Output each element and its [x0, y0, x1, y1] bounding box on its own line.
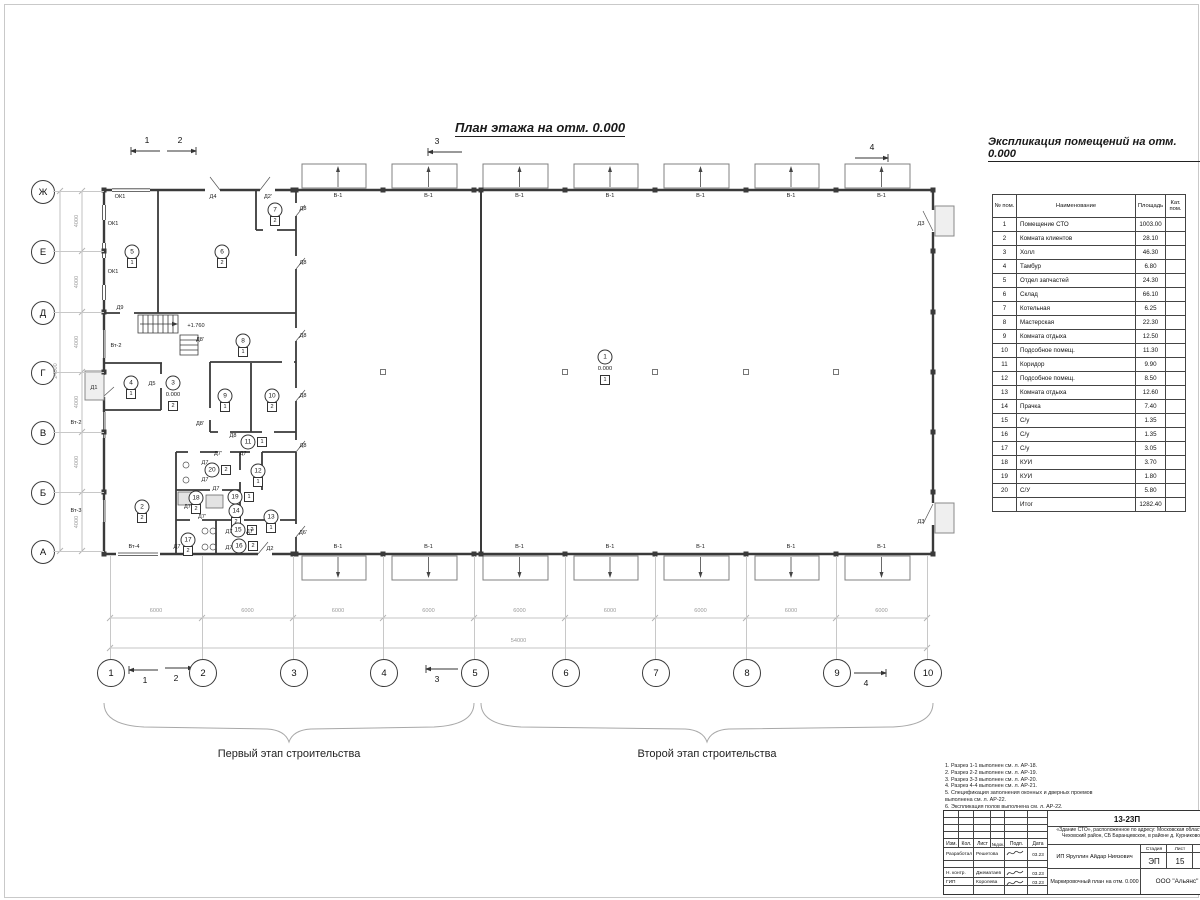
gate-label-v1: В-1	[877, 544, 886, 550]
axis-line	[565, 556, 566, 659]
section-mark-4: 4	[864, 678, 869, 688]
tb-signature	[1004, 885, 1029, 895]
section-mark-1: 1	[143, 675, 148, 685]
stage-2-label: Второй этап строительства	[638, 748, 777, 760]
plan-label-вт-2: Вт-2	[70, 420, 81, 426]
explication-row: 10Подсобное помещ.11.30	[993, 344, 1186, 358]
explication-row: 8Мастерская22.30	[993, 316, 1186, 330]
plan-label-д5: Д5	[149, 381, 156, 387]
floor-type-4: 1	[126, 389, 136, 399]
floor-type-11: 1	[257, 437, 267, 447]
dim-bay: 6000	[875, 608, 887, 614]
section-mark-2: 2	[174, 673, 179, 683]
gate-label-v1: В-1	[424, 544, 433, 550]
axis-line	[836, 556, 837, 659]
room-number-1: 1	[598, 350, 613, 365]
explication-row: 9Комната отдыха12.50	[993, 330, 1186, 344]
room-number-3: 3	[166, 376, 181, 391]
plan-label-д8: Д8	[230, 433, 237, 439]
plan-label-д2': Д2'	[264, 194, 272, 200]
section-mark-1: 1	[145, 135, 150, 145]
plan-label-д8: Д8	[300, 333, 307, 339]
plan-label-д3: Д3	[918, 519, 925, 525]
floor-type-18: 2	[191, 504, 201, 514]
gate-label-v1: В-1	[877, 193, 886, 199]
plan-label-д7': Д7'	[198, 514, 206, 520]
gate-label-v1: В-1	[515, 193, 524, 199]
room-number-19: 19	[228, 490, 243, 505]
col-header-name: Наименование	[1017, 195, 1136, 218]
explication-row: 11Коридор9.90	[993, 358, 1186, 372]
room-number-15: 15	[231, 523, 246, 538]
gate-label-v1: В-1	[696, 193, 705, 199]
floor-type-8: 1	[238, 347, 248, 357]
explication-row: 1Помещение СТО1003.00	[993, 218, 1186, 232]
axis-circle-Е: Е	[31, 240, 55, 264]
plan-label-д7: Д7	[240, 451, 247, 457]
explication-table: № пом. Наименование Площадь Кат. пом. 1П…	[992, 194, 1186, 512]
axis-circle-7: 7	[642, 659, 670, 687]
axis-circle-Ж: Ж	[31, 180, 55, 204]
dim-bay: 6000	[604, 608, 616, 614]
axis-circle-9: 9	[823, 659, 851, 687]
axis-circle-6: 6	[552, 659, 580, 687]
floor-type-12: 1	[253, 477, 263, 487]
plan-label-д8: Д8	[300, 443, 307, 449]
axis-line	[655, 556, 656, 659]
plan-label-д7: Д7	[202, 477, 209, 483]
plan-label-д6': Д6'	[299, 530, 307, 536]
axis-line	[53, 312, 104, 313]
axis-line	[53, 492, 104, 493]
plan-label-д4: Д4	[210, 194, 217, 200]
floor-type-1: 1	[600, 375, 610, 385]
plan-label-д8: Д8	[300, 393, 307, 399]
plan-label-д7': Д7'	[184, 504, 192, 510]
explication-row: 20С/У5.80	[993, 484, 1186, 498]
floor-type-7: 2	[270, 216, 280, 226]
dim-total-height: 24000	[53, 363, 59, 379]
axis-line	[293, 556, 294, 659]
note-line: 5. Спецификация заполнения оконных и две…	[945, 790, 1113, 804]
axis-circle-4: 4	[370, 659, 398, 687]
explication-title: Экспликация помещений на отм. 0.000	[988, 136, 1200, 162]
dim-bay: 6000	[422, 608, 434, 614]
axis-circle-А: А	[31, 540, 55, 564]
section-mark-4: 4	[870, 142, 875, 152]
axis-circle-Б: Б	[31, 481, 55, 505]
note-line: 3. Разрез 3-3 выполнен см. л. АР-20.	[945, 777, 1113, 784]
axis-circle-8: 8	[733, 659, 761, 687]
col-header-num: № пом.	[993, 195, 1017, 218]
plan-label-д2: Д2	[267, 546, 274, 552]
axis-circle-10: 10	[914, 659, 942, 687]
plan-label-д8': Д8'	[196, 337, 204, 343]
gate-label-v1: В-1	[424, 193, 433, 199]
explication-row: 4Тамбур6.80	[993, 260, 1186, 274]
axis-line	[53, 251, 104, 252]
explication-row: 7Котельная6.25	[993, 302, 1186, 316]
level-mark: 0.000	[165, 392, 182, 398]
floor-type-10: 2	[267, 402, 277, 412]
dim-row: 4000	[74, 456, 80, 468]
axis-circle-В: В	[31, 421, 55, 445]
explication-row: 5Отдел запчастей24.30	[993, 274, 1186, 288]
dim-bay: 6000	[513, 608, 525, 614]
floor-type-5: 1	[127, 258, 137, 268]
dim-bay: 6000	[694, 608, 706, 614]
dim-total-width: 54000	[511, 638, 527, 644]
plan-label-д8: Д8	[300, 260, 307, 266]
floor-type-16: 2	[248, 541, 258, 551]
tb-customer: ИП Яруллин Айдар Ниязович	[1047, 844, 1142, 870]
plan-label-+1.760: +1.760	[187, 323, 204, 329]
dim-row: 4000	[74, 396, 80, 408]
tb-role	[943, 885, 977, 895]
gate-label-v1: В-1	[334, 193, 343, 199]
floor-type-17: 2	[183, 546, 193, 556]
axis-circle-3: 3	[280, 659, 308, 687]
note-line: 4. Разрез 4-4 выполнен см. л. АР-21.	[945, 783, 1113, 790]
note-line: 2. Разрез 2-2 выполнен см. л. АР-19.	[945, 770, 1113, 777]
section-mark-2: 2	[178, 135, 183, 145]
axis-line	[746, 556, 747, 659]
axis-line	[53, 191, 104, 192]
explication-row: 13Комната отдыха12.60	[993, 386, 1186, 400]
explication-row: 12Подсобное помещ.8.50	[993, 372, 1186, 386]
plan-label-д7': Д7'	[214, 451, 222, 457]
explication-row: 15С/у1.35	[993, 414, 1186, 428]
axis-line	[53, 372, 104, 373]
explication-total-row: Итог1282.40	[993, 498, 1186, 512]
plan-label-д7: Д7	[174, 544, 181, 550]
axis-circle-Г: Г	[31, 361, 55, 385]
tb-date	[1027, 885, 1049, 895]
axis-line	[927, 556, 928, 659]
dim-row: 4000	[74, 215, 80, 227]
explication-row: 2Комната клиентов28.10	[993, 232, 1186, 246]
explication-row: 3Холл46.30	[993, 246, 1186, 260]
floor-type-3: 2	[168, 401, 178, 411]
floor-type-20: 2	[221, 465, 231, 475]
explication-row: 19КУИ1.80	[993, 470, 1186, 484]
axis-line	[383, 556, 384, 659]
floor-type-9: 1	[220, 402, 230, 412]
plan-label-д7': Д7'	[246, 529, 254, 535]
room-number-11: 11	[241, 435, 256, 450]
gate-label-v1: В-1	[787, 544, 796, 550]
tb-name	[973, 885, 1008, 895]
plan-label-д8': Д8'	[196, 421, 204, 427]
gate-label-v1: В-1	[515, 544, 524, 550]
explication-row: 18КУИ3.70	[993, 456, 1186, 470]
level-mark: 0.000	[597, 366, 614, 372]
general-notes: 1. Разрез 1-1 выполнен см. л. АР-18.2. Р…	[945, 763, 1113, 810]
dim-row: 4000	[74, 336, 80, 348]
dim-bay: 6000	[150, 608, 162, 614]
plan-label-д9: Д9	[117, 305, 124, 311]
axis-line	[110, 556, 111, 659]
axis-circle-2: 2	[189, 659, 217, 687]
plan-label-ок1: ОК1	[108, 269, 119, 275]
plan-label-д7: Д7	[226, 545, 233, 551]
floor-type-13: 1	[266, 523, 276, 533]
dim-bay: 6000	[241, 608, 253, 614]
plan-label-д7: Д7	[202, 460, 209, 466]
col-header-area: Площадь	[1136, 195, 1166, 218]
plan-label-д1: Д1	[91, 385, 98, 391]
plan-label-д7: Д7	[226, 529, 233, 535]
axis-line	[202, 556, 203, 659]
dim-row: 4000	[74, 515, 80, 527]
plan-label-ок1: ОК1	[108, 221, 119, 227]
axis-circle-5: 5	[461, 659, 489, 687]
stage-1-label: Первый этап строительства	[218, 748, 361, 760]
plan-label-вт-2: Вт-2	[110, 343, 121, 349]
note-line: 1. Разрез 1-1 выполнен см. л. АР-18.	[945, 763, 1113, 770]
gate-label-v1: В-1	[334, 544, 343, 550]
dim-bay: 6000	[785, 608, 797, 614]
plan-label-вт-4: Вт-4	[128, 544, 139, 550]
plan-label-д3: Д3	[918, 221, 925, 227]
dim-bay: 6000	[332, 608, 344, 614]
plan-label-вт-3: Вт-3	[70, 508, 81, 514]
tb-company: ООО "Альянс"	[1140, 868, 1200, 895]
dim-row: 4000	[74, 275, 80, 287]
signature-icon	[1005, 848, 1025, 858]
tb-sheet-title: Маркировочный план на отм. 0.000	[1047, 868, 1142, 895]
floor-type-2: 2	[137, 513, 147, 523]
room-number-16: 16	[232, 539, 247, 554]
explication-row: 16С/у1.35	[993, 428, 1186, 442]
plan-label-д7: Д7	[213, 486, 220, 492]
gate-label-v1: В-1	[787, 193, 796, 199]
section-mark-3: 3	[435, 136, 440, 146]
gate-label-v1: В-1	[696, 544, 705, 550]
axis-circle-1: 1	[97, 659, 125, 687]
axis-line	[53, 432, 104, 433]
gate-label-v1: В-1	[606, 193, 615, 199]
axis-line	[53, 551, 104, 552]
plan-label-ок1: ОК1	[115, 194, 126, 200]
explication-row: 6Склад66.10	[993, 288, 1186, 302]
explication-row: 14Прачка7.40	[993, 400, 1186, 414]
floor-type-19: 1	[244, 492, 254, 502]
axis-circle-Д: Д	[31, 301, 55, 325]
floor-type-6: 2	[217, 258, 227, 268]
explication-row: 17С/у3.05	[993, 442, 1186, 456]
axis-line	[474, 556, 475, 659]
plan-title: План этажа на отм. 0.000	[455, 120, 625, 137]
section-mark-3: 3	[435, 674, 440, 684]
plan-label-д8: Д8	[300, 206, 307, 212]
col-header-cat: Кат. пом.	[1166, 195, 1186, 218]
gate-label-v1: В-1	[606, 544, 615, 550]
drawing-sheet: { "plan_title": "План этажа на отм. 0.00…	[0, 0, 1200, 900]
